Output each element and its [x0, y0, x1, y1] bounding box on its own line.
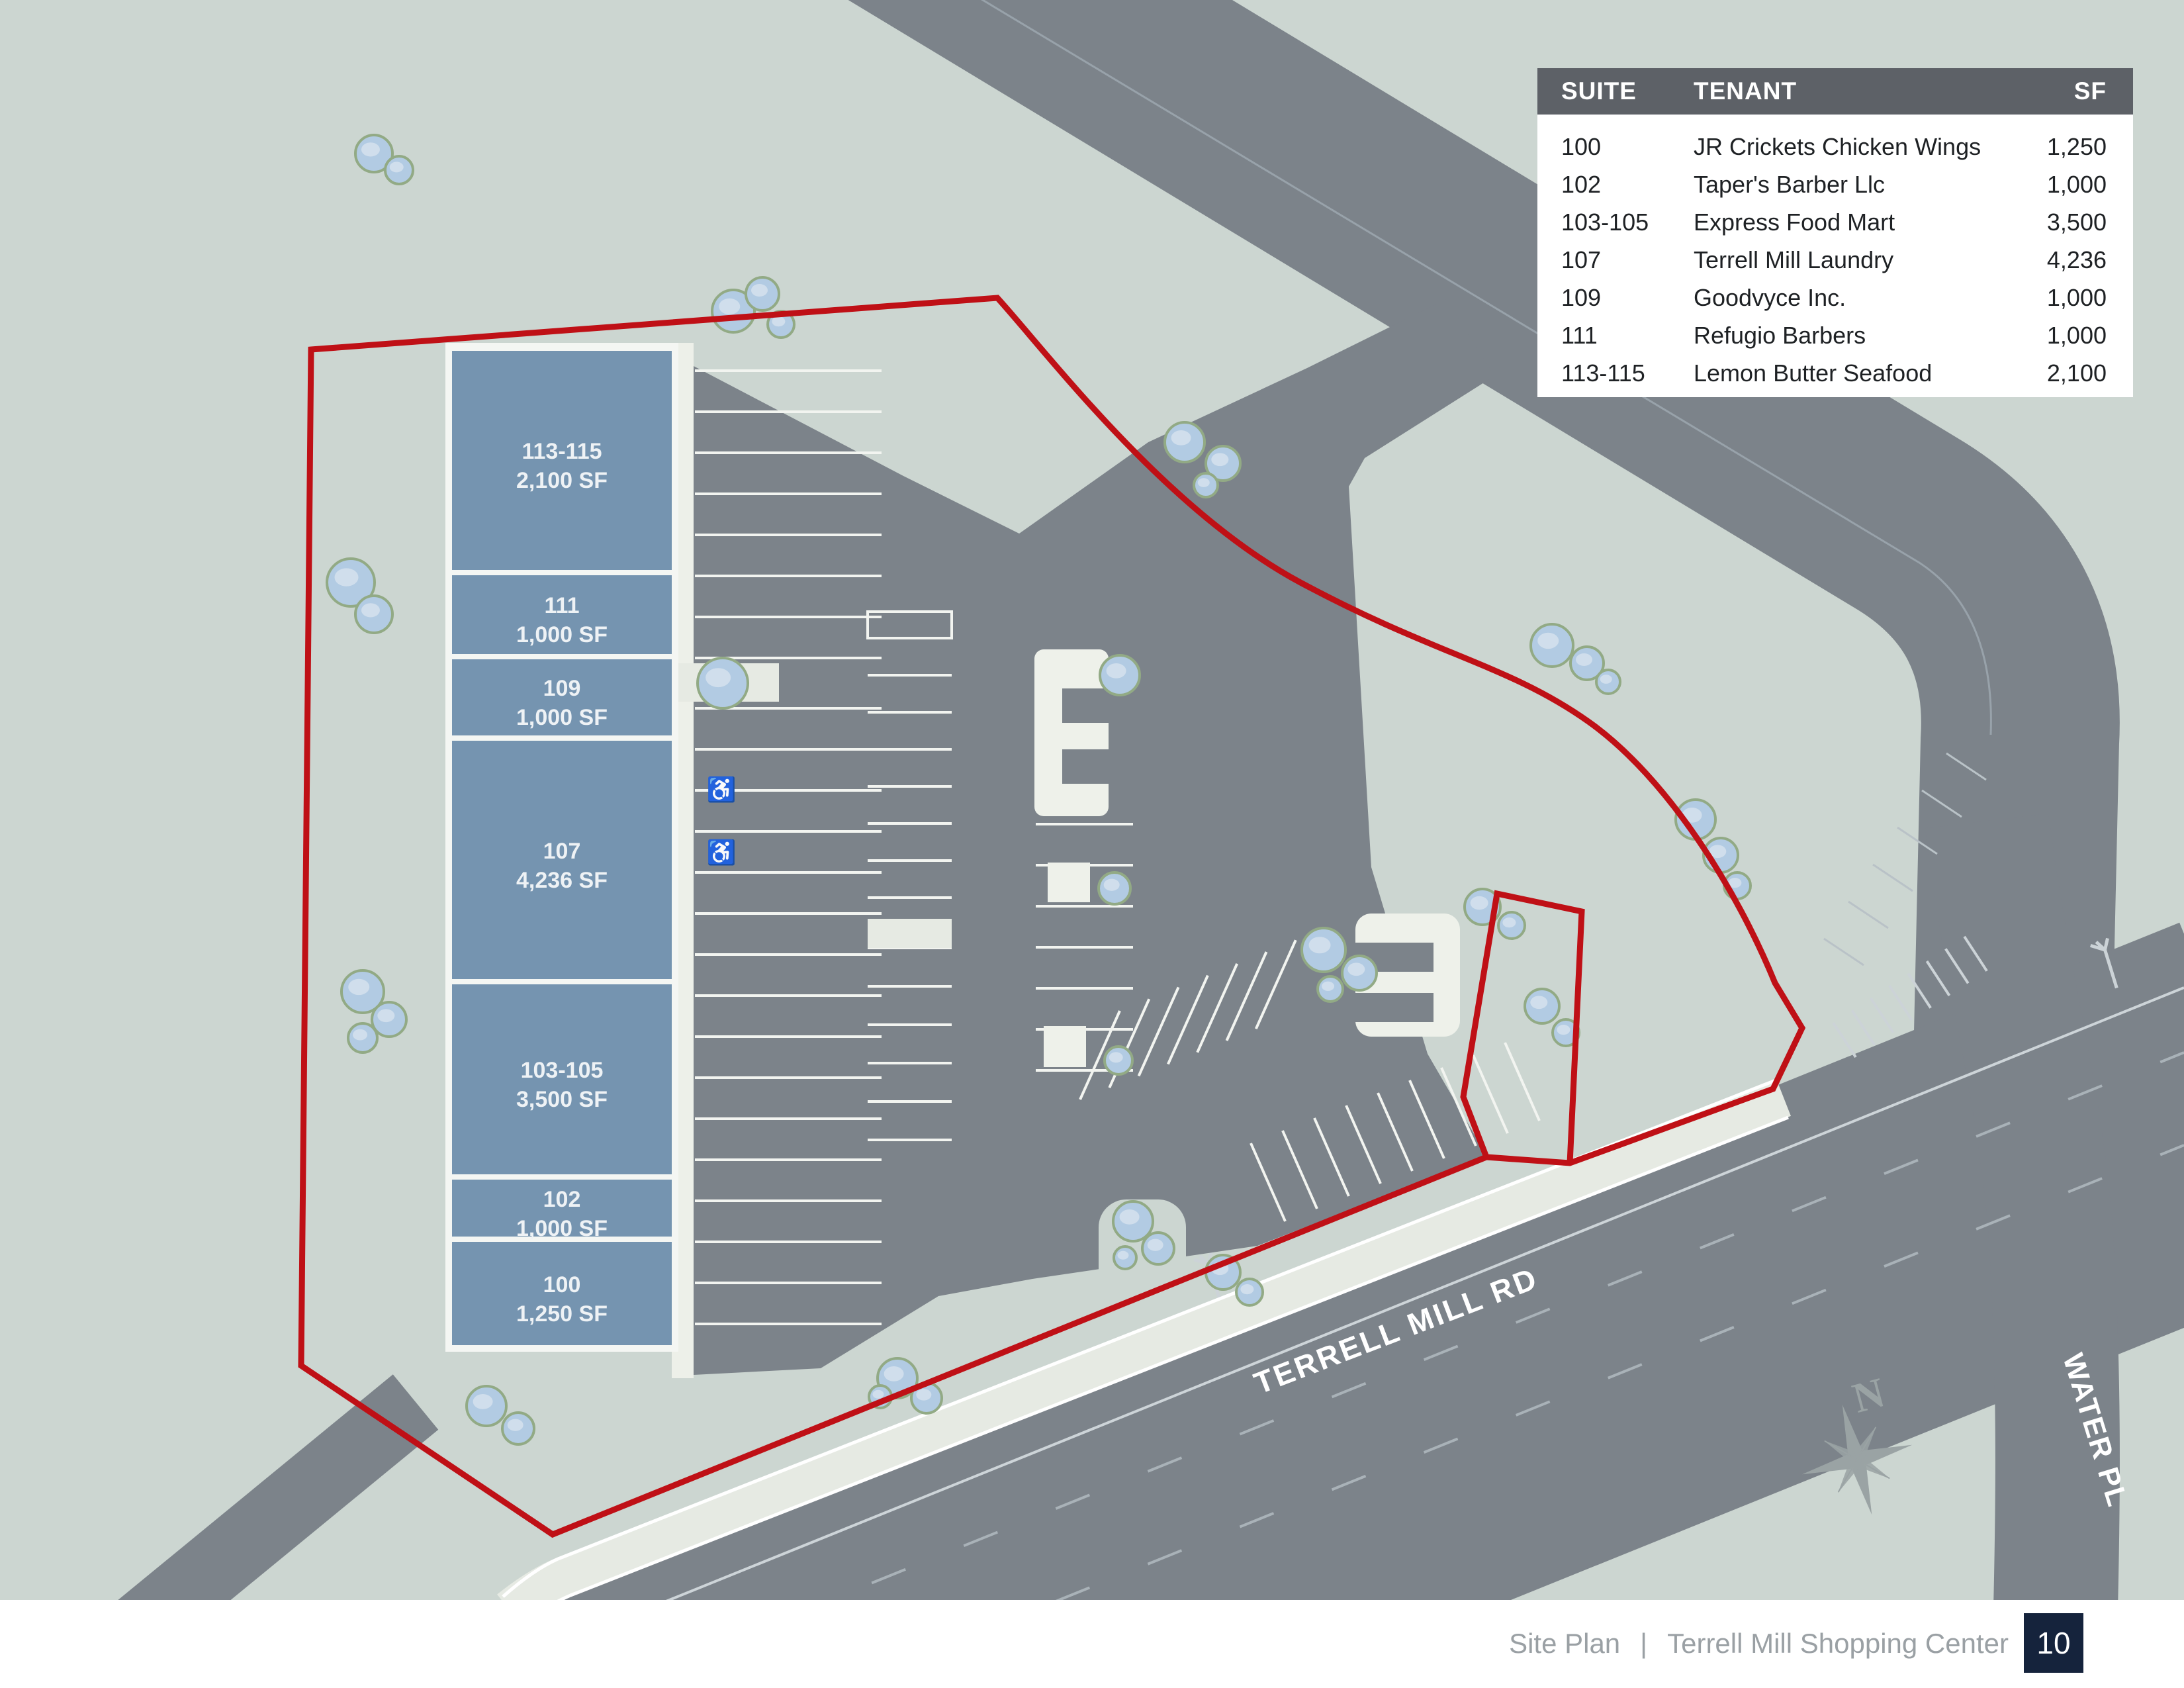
table-row: 103-105 Express Food Mart 3,500: [1537, 203, 2133, 241]
tree-highlight: [335, 568, 359, 586]
tenant-table-header: SUITE TENANT SF: [1537, 68, 2133, 115]
tree-highlight: [1347, 962, 1365, 976]
table-row: 109 Goodvyce Inc. 1,000: [1537, 279, 2133, 316]
page-footer: Site Plan | Terrell Mill Shopping Center…: [0, 1600, 2184, 1688]
tree-highlight: [1211, 453, 1228, 466]
cell-tenant: Taper's Barber Llc: [1694, 171, 2007, 199]
cell-suite: 107: [1537, 246, 1694, 274]
suite-sf: 4,236 SF: [516, 868, 608, 893]
tenant-table-body: 100 JR Crickets Chicken Wings 1,250 102 …: [1537, 115, 2133, 392]
tree-highlight: [1171, 430, 1191, 445]
suite-label: 102: [543, 1187, 581, 1212]
tree-highlight: [1120, 1209, 1140, 1225]
footer-section: Site Plan: [1509, 1628, 1620, 1660]
cell-suite: 102: [1537, 171, 1694, 199]
cell-tenant: JR Crickets Chicken Wings: [1694, 133, 2007, 161]
island-slot: [1062, 749, 1110, 784]
cell-suite: 103-105: [1537, 209, 1694, 236]
tree-highlight: [508, 1419, 523, 1431]
suite-label: 103-105: [521, 1058, 604, 1083]
island-square-2: [1044, 1026, 1086, 1067]
tree-highlight: [884, 1366, 904, 1382]
tree-highlight: [361, 142, 380, 156]
tree-highlight: [1198, 478, 1210, 487]
site-plan-page: 113-115 2,100 SF 111 1,000 SF 109 1,000 …: [0, 0, 2184, 1688]
cell-suite: 111: [1537, 322, 1694, 350]
tree-highlight: [361, 603, 380, 617]
water-pl-road: [1987, 821, 2058, 1600]
cell-tenant: Goodvyce Inc.: [1694, 284, 2007, 312]
tree-highlight: [390, 162, 404, 172]
footer-separator: |: [1640, 1628, 1647, 1660]
tree-highlight: [353, 1029, 367, 1041]
tree-highlight: [1471, 896, 1488, 910]
island-e1: [1034, 649, 1109, 816]
tree-highlight: [1530, 996, 1547, 1009]
tree-highlight: [1600, 675, 1612, 684]
footer-property: Terrell Mill Shopping Center: [1667, 1628, 2009, 1660]
page-number-badge: 10: [2024, 1613, 2083, 1673]
suite-label: 113-115: [522, 439, 602, 464]
tree-highlight: [1322, 982, 1334, 991]
cell-tenant: Lemon Butter Seafood: [1694, 359, 2007, 387]
tree-highlight: [1148, 1239, 1163, 1251]
tree-highlight: [473, 1394, 493, 1409]
header-suite: SUITE: [1537, 77, 1694, 105]
suite-sf: 1,000 SF: [516, 622, 608, 647]
tree-highlight: [751, 284, 768, 297]
tree-highlight: [772, 316, 785, 326]
tree-highlight: [1117, 1251, 1128, 1260]
tree-highlight: [377, 1009, 394, 1022]
cell-tenant: Express Food Mart: [1694, 209, 2007, 236]
tree-highlight: [1109, 1052, 1123, 1062]
tree-highlight: [705, 668, 731, 687]
cell-sf: 1,000: [2007, 322, 2133, 350]
tree-highlight: [872, 1390, 884, 1399]
tenant-table: SUITE TENANT SF 100 JR Crickets Chicken …: [1537, 68, 2133, 397]
suite-sf: 1,000 SF: [516, 1216, 608, 1241]
tree-highlight: [1502, 917, 1516, 927]
table-row: 100 JR Crickets Chicken Wings 1,250: [1537, 128, 2133, 165]
island-slot: [1355, 993, 1433, 1022]
handicap-icon: ♿: [707, 776, 737, 803]
suite-label: 107: [543, 839, 581, 864]
tree-highlight: [719, 299, 740, 314]
island-square-1: [1048, 863, 1090, 902]
cell-sf: 4,236: [2007, 246, 2133, 274]
suite-sf: 1,000 SF: [516, 705, 608, 730]
island-slot: [1062, 688, 1110, 723]
suite-label: 100: [543, 1272, 581, 1297]
cell-sf: 1,000: [2007, 284, 2133, 312]
table-row: 111 Refugio Barbers 1,000: [1537, 316, 2133, 354]
footer-text: Site Plan | Terrell Mill Shopping Center: [1509, 1628, 2009, 1660]
tree-highlight: [1537, 633, 1559, 649]
page-number: 10: [2036, 1625, 2070, 1661]
cell-suite: 113-115: [1537, 359, 1694, 387]
suite-sf: 2,100 SF: [516, 468, 608, 493]
cell-sf: 1,250: [2007, 133, 2133, 161]
tree-highlight: [1107, 663, 1126, 679]
cell-sf: 3,500: [2007, 209, 2133, 236]
header-sf: SF: [2007, 77, 2133, 105]
table-row: 107 Terrell Mill Laundry 4,236: [1537, 241, 2133, 279]
tree-highlight: [1576, 653, 1592, 666]
tree-highlight: [348, 979, 369, 995]
mid-walkway: [868, 919, 952, 948]
tree-highlight: [1104, 879, 1120, 891]
header-tenant: TENANT: [1694, 77, 2007, 105]
building: 113-115 2,100 SF 111 1,000 SF 109 1,000 …: [445, 343, 678, 1352]
cell-tenant: Terrell Mill Laundry: [1694, 246, 2007, 274]
table-row: 102 Taper's Barber Llc 1,000: [1537, 165, 2133, 203]
cell-suite: 109: [1537, 284, 1694, 312]
suite-sf: 3,500 SF: [516, 1087, 608, 1112]
suite-label: 111: [545, 593, 580, 618]
suite-sf: 1,250 SF: [516, 1301, 608, 1327]
tree-highlight: [1309, 937, 1331, 953]
tree-highlight: [916, 1389, 931, 1400]
tree-highlight: [1240, 1284, 1253, 1294]
cell-tenant: Refugio Barbers: [1694, 322, 2007, 350]
table-row: 113-115 Lemon Butter Seafood 2,100: [1537, 354, 2133, 392]
suite-label: 109: [543, 676, 581, 701]
cell-sf: 2,100: [2007, 359, 2133, 387]
tree-highlight: [1557, 1025, 1570, 1035]
handicap-icon: ♿: [707, 839, 737, 866]
cell-sf: 1,000: [2007, 171, 2133, 199]
cell-suite: 100: [1537, 133, 1694, 161]
